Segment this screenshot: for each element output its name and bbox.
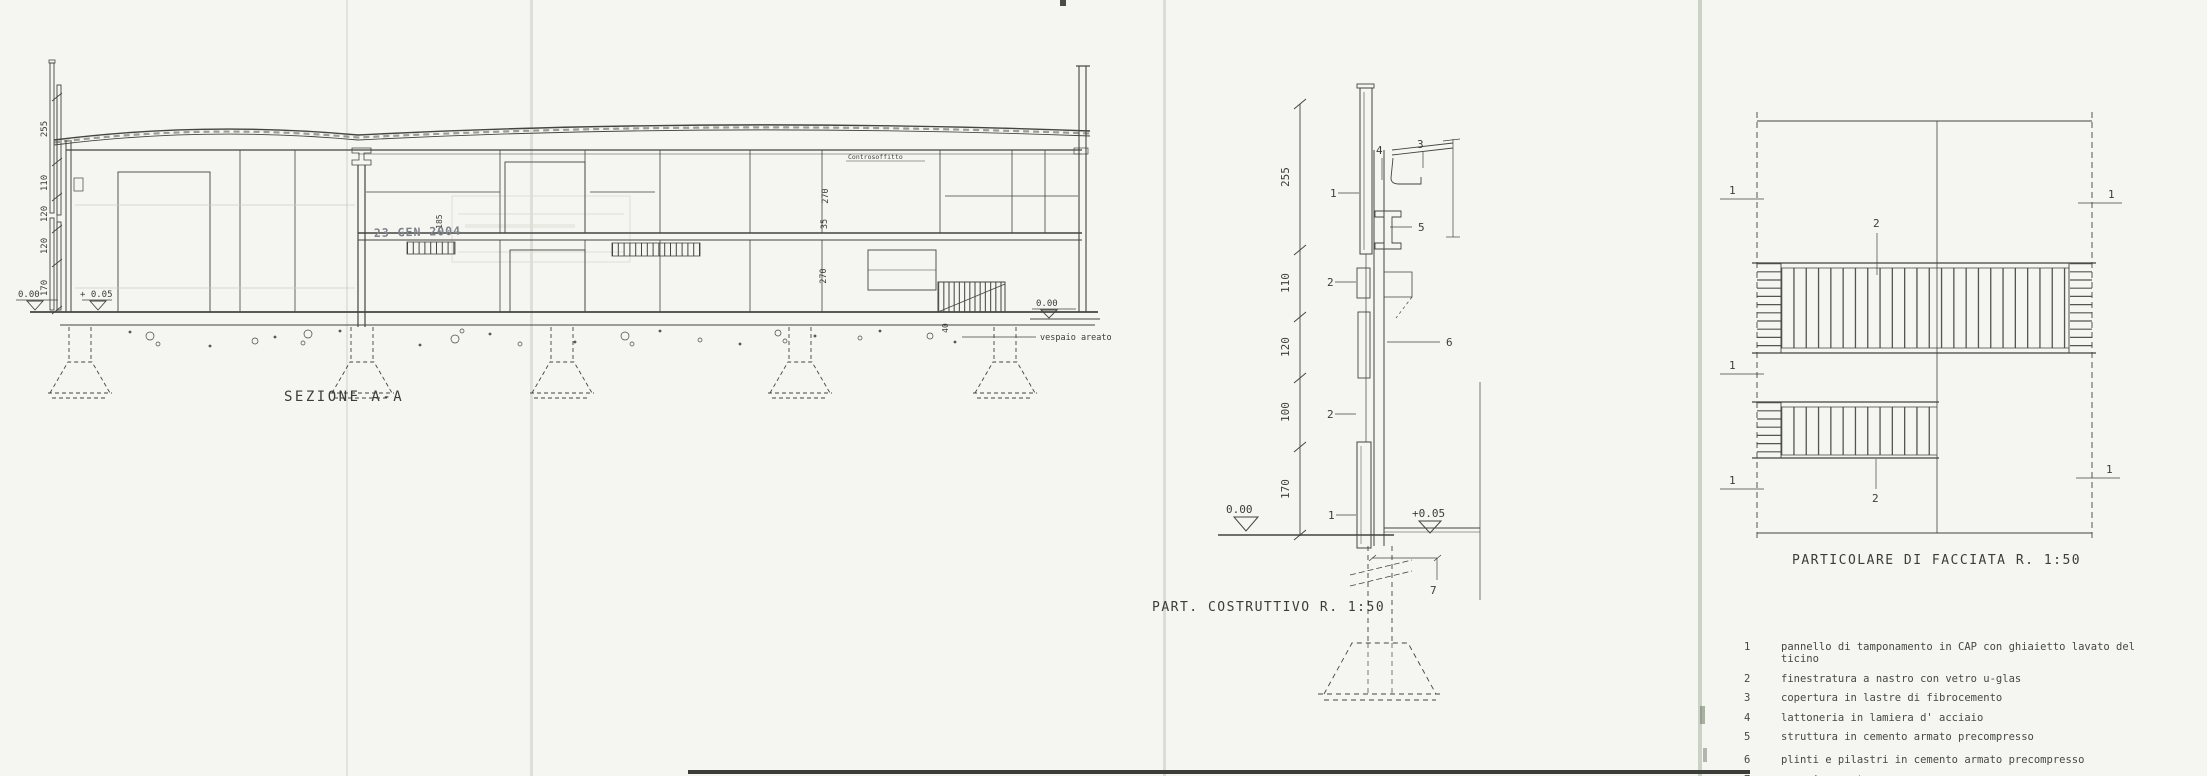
dim-label: 100 [1279,402,1292,422]
callout-1: 1 [1328,509,1335,522]
facade-frame [1757,112,2092,542]
legend-item: 5 struttura in cemento armato precompres… [1744,731,2174,743]
callout-1: 1 [1729,474,1736,487]
facade-callouts: 2 2 1 1 1 1 1 [1720,184,2122,505]
dim-label: 35 [820,219,830,229]
callout-2: 2 [1327,276,1334,289]
section-level-markers: 0.00 + 0.05 0.00 [16,290,1076,318]
legend-item: 6 plinti e pilastri in cemento armato pr… [1744,754,2174,766]
section-hall [75,150,355,312]
legend-item-text: pannello di tamponamento in CAP con ghia… [1781,641,2174,665]
level-label: +0.05 [1412,507,1445,520]
dim-label: 170 [40,280,50,296]
legend-item-number: 6 [1744,754,1781,766]
level-label: 0.00 [1226,503,1253,516]
level-label: 0.00 [18,290,40,300]
section-mid-column [352,148,371,327]
legend: 1 pannello di tamponamento in CAP con gh… [1744,641,2174,776]
legend-item-text: struttura in cemento armato precompresso [1781,731,2174,743]
legend-item: 3 copertura in lastre di fibrocemento [1744,692,2174,704]
legend-item-text: lattoneria in lamiera d' acciaio [1781,712,2174,724]
legend-item: 2 finestratura a nastro con vetro u-glas [1744,673,2174,685]
section-grilles [407,242,700,256]
construction-detail-drawing: 255 110 120 100 170 [1152,84,1480,700]
legend-item-number: 3 [1744,692,1781,704]
legend-item-number: 5 [1744,731,1781,743]
ceiling-note: Controsoffitto [848,153,903,161]
section-footings [48,327,1037,398]
callout-1: 1 [2108,188,2115,201]
legend-item-number: 1 [1744,641,1781,665]
callout-6: 6 [1446,336,1453,349]
section-dim-chain: 255 110 120 120 170 [40,93,62,314]
facade-detail-title: PARTICOLARE DI FACCIATA R. 1:50 [1792,553,2081,568]
callout-2: 2 [1872,492,1879,505]
facade-lower-window-band [1752,402,1939,458]
construction-detail-title: PART. COSTRUTTIVO R. 1:50 [1152,600,1385,615]
detail-dim-chain: 255 110 120 100 170 [1279,99,1306,540]
callout-3: 3 [1417,138,1424,151]
callout-1: 1 [1330,187,1337,200]
legend-item: 4 lattoneria in lamiera d' acciaio [1744,712,2174,724]
dim-label: 255 [40,121,50,137]
dim-label: 270 [821,188,831,203]
dim-label: 120 [40,206,50,222]
facade-detail-drawing: 2 2 1 1 1 1 1 PARTICOLARE DI FACCIATA R.… [1720,112,2122,568]
callout-7: 7 [1430,584,1437,597]
legend-item-text: plinti e pilastri in cemento armato prec… [1781,754,2174,766]
legend-item-text: finestratura a nastro con vetro u-glas [1781,673,2174,685]
callout-1: 1 [1729,184,1736,197]
section-stair [938,282,1005,312]
dim-label: 120 [40,238,50,254]
callout-4: 4 [1376,144,1383,157]
section-title: SEZIONE A-A [284,389,404,405]
level-label: 0.00 [1036,299,1058,309]
crawl-space-note: vespaio areato [1040,333,1112,343]
date-stamp: 23 GEN 2004 [374,224,462,240]
dim-label: 110 [40,175,50,191]
dim-label: 255 [1279,167,1292,187]
callout-2: 2 [1873,217,1880,230]
facade-upper-window-band [1752,263,2096,353]
legend-item-number: 2 [1744,673,1781,685]
section-roof [54,125,1090,154]
detail-foundation [1318,546,1442,700]
detail-wall [1357,84,1460,548]
section-drawing: 255 110 120 120 170 0.00 + 0.05 0.00 2 [16,60,1112,405]
dim-label: 270 [819,268,829,283]
legend-item-number: 4 [1744,712,1781,724]
level-label: + 0.05 [80,290,113,300]
section-ground [30,312,1100,347]
drawing-sheet: 255 110 120 120 170 0.00 + 0.05 0.00 2 [0,0,2207,776]
legend-item-text: copertura in lastre di fibrocemento [1781,692,2174,704]
callout-1: 1 [1729,359,1736,372]
section-right-wall [1074,66,1090,312]
callout-5: 5 [1418,221,1425,234]
section-right-block [358,150,1082,312]
section-left-wall [49,60,83,312]
dim-label: 170 [1279,479,1292,499]
detail-ground [1218,382,1480,600]
dim-label: 40 [941,323,950,333]
callout-2: 2 [1327,408,1334,421]
callout-1: 1 [2106,463,2113,476]
dim-label: 120 [1279,337,1292,357]
dim-label: 110 [1279,273,1292,293]
section-ghost-print [452,196,630,262]
legend-item: 1 pannello di tamponamento in CAP con gh… [1744,641,2174,665]
section-notes: Controsoffitto vespaio areato [846,153,1112,343]
